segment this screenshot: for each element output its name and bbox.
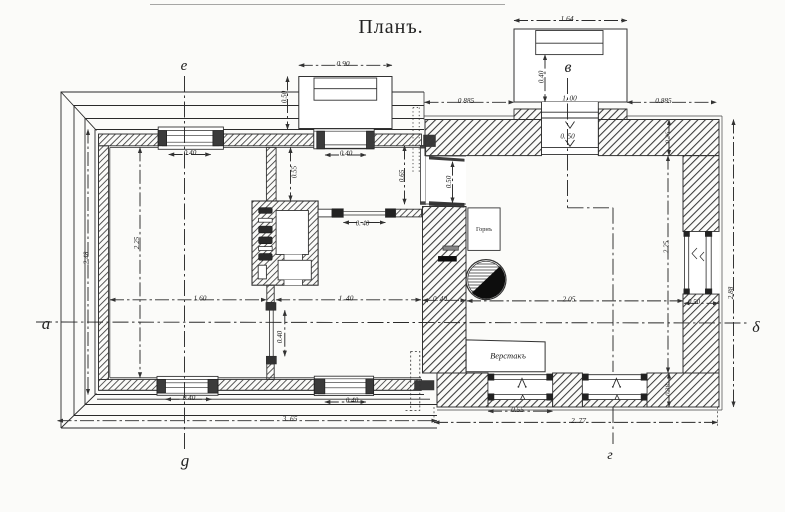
svg-text:0.40: 0.40 bbox=[340, 150, 353, 158]
svg-text:2.88: 2.88 bbox=[727, 286, 735, 299]
svg-text:в: в bbox=[565, 59, 572, 76]
svg-text:Верстакъ: Верстакъ bbox=[490, 351, 526, 361]
svg-text:2. 77: 2. 77 bbox=[571, 416, 586, 425]
svg-text:0.90: 0.90 bbox=[336, 59, 349, 68]
svg-text:0.55: 0.55 bbox=[511, 405, 524, 414]
svg-text:0.38: 0.38 bbox=[664, 383, 671, 395]
svg-text:0.50: 0.50 bbox=[688, 298, 701, 306]
svg-text:0.55: 0.55 bbox=[291, 165, 299, 178]
svg-text:3. 65: 3. 65 bbox=[282, 414, 298, 423]
svg-text:0. 40: 0. 40 bbox=[433, 295, 448, 303]
svg-text:1.60: 1.60 bbox=[194, 294, 207, 303]
svg-text:2.25: 2.25 bbox=[662, 240, 670, 253]
svg-text:2 05: 2 05 bbox=[563, 295, 576, 304]
svg-text:0.65: 0.65 bbox=[398, 169, 406, 182]
svg-text:е: е bbox=[181, 58, 188, 74]
svg-text:0.40: 0.40 bbox=[276, 330, 284, 343]
svg-text:0.36: 0.36 bbox=[664, 131, 671, 143]
svg-text:Горнъ: Горнъ bbox=[476, 226, 493, 233]
svg-text:δ: δ bbox=[752, 319, 760, 336]
svg-text:1. 40: 1. 40 bbox=[339, 294, 354, 303]
svg-text:1. 00: 1. 00 bbox=[562, 94, 577, 103]
svg-text:a: a bbox=[42, 314, 51, 333]
svg-text:0.40: 0.40 bbox=[184, 149, 197, 157]
svg-text:g: g bbox=[181, 451, 190, 470]
svg-text:2.25: 2.25 bbox=[133, 236, 141, 249]
svg-text:0.50: 0.50 bbox=[445, 175, 453, 188]
svg-text:г: г bbox=[607, 448, 613, 463]
svg-text:0.885: 0.885 bbox=[655, 96, 672, 105]
svg-text:0.40: 0.40 bbox=[538, 70, 546, 83]
svg-text:Планъ.: Планъ. bbox=[358, 16, 423, 38]
svg-text:0.885: 0.885 bbox=[458, 96, 475, 105]
svg-text:0.50: 0.50 bbox=[280, 90, 288, 103]
svg-text:0.40: 0.40 bbox=[346, 397, 359, 405]
svg-text:2.48: 2.48 bbox=[82, 251, 90, 264]
svg-text:1.64: 1.64 bbox=[560, 14, 573, 23]
svg-text:0. 40: 0. 40 bbox=[356, 221, 370, 228]
